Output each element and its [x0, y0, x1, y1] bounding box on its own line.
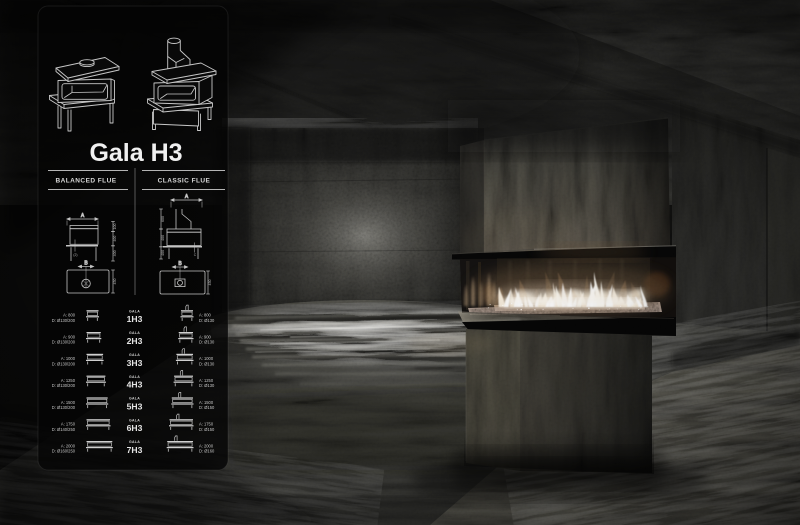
svg-text:GALA: GALA — [129, 309, 140, 313]
svg-text:7H3: 7H3 — [127, 445, 143, 455]
svg-text:D: Ø130/200: D: Ø130/200 — [52, 340, 76, 345]
svg-text:GALA: GALA — [129, 331, 140, 335]
svg-text:100: 100 — [113, 224, 117, 230]
svg-text:400: 400 — [113, 250, 117, 256]
svg-text:400: 400 — [161, 250, 165, 256]
svg-text:Gala H3: Gala H3 — [89, 139, 182, 167]
svg-text:D: Ø130: D: Ø130 — [199, 340, 215, 345]
svg-text:GALA: GALA — [129, 440, 140, 444]
svg-text:600: 600 — [161, 216, 165, 222]
svg-text:3H3: 3H3 — [127, 358, 143, 368]
svg-text:D: Ø130: D: Ø130 — [199, 318, 215, 323]
svg-text:D: Ø140/250: D: Ø140/250 — [52, 427, 76, 432]
svg-text:BALANCED FLUE: BALANCED FLUE — [55, 178, 116, 185]
svg-text:D: Ø130/200: D: Ø130/200 — [52, 405, 76, 410]
svg-text:GALA: GALA — [129, 397, 140, 401]
svg-text:6H3: 6H3 — [127, 423, 143, 433]
svg-text:2H3: 2H3 — [127, 336, 143, 346]
svg-text:450: 450 — [208, 280, 212, 286]
svg-text:(2): (2) — [73, 253, 77, 257]
svg-text:D: Ø130/200: D: Ø130/200 — [52, 361, 76, 366]
svg-text:D: Ø130: D: Ø130 — [199, 361, 215, 366]
svg-text:D: Ø160: D: Ø160 — [199, 449, 215, 454]
svg-text:GALA: GALA — [129, 418, 140, 422]
svg-text:D: Ø130/200: D: Ø130/200 — [52, 318, 76, 323]
svg-text:D: Ø130: D: Ø130 — [199, 383, 215, 388]
svg-text:GALA: GALA — [129, 375, 140, 379]
svg-text:5H3: 5H3 — [127, 401, 143, 411]
svg-text:D: Ø130/200: D: Ø130/200 — [52, 383, 76, 388]
svg-text:GALA: GALA — [129, 353, 140, 357]
svg-text:D: Ø150: D: Ø150 — [199, 405, 215, 410]
svg-text:450: 450 — [113, 279, 117, 285]
svg-text:D: Ø150: D: Ø150 — [199, 427, 215, 432]
svg-text:400: 400 — [161, 235, 165, 241]
svg-text:1H3: 1H3 — [127, 314, 143, 324]
svg-text:4H3: 4H3 — [127, 380, 143, 390]
svg-text:CLASSIC FLUE: CLASSIC FLUE — [158, 178, 211, 185]
svg-text:400: 400 — [113, 236, 117, 242]
svg-text:D: Ø160/250: D: Ø160/250 — [52, 449, 76, 454]
